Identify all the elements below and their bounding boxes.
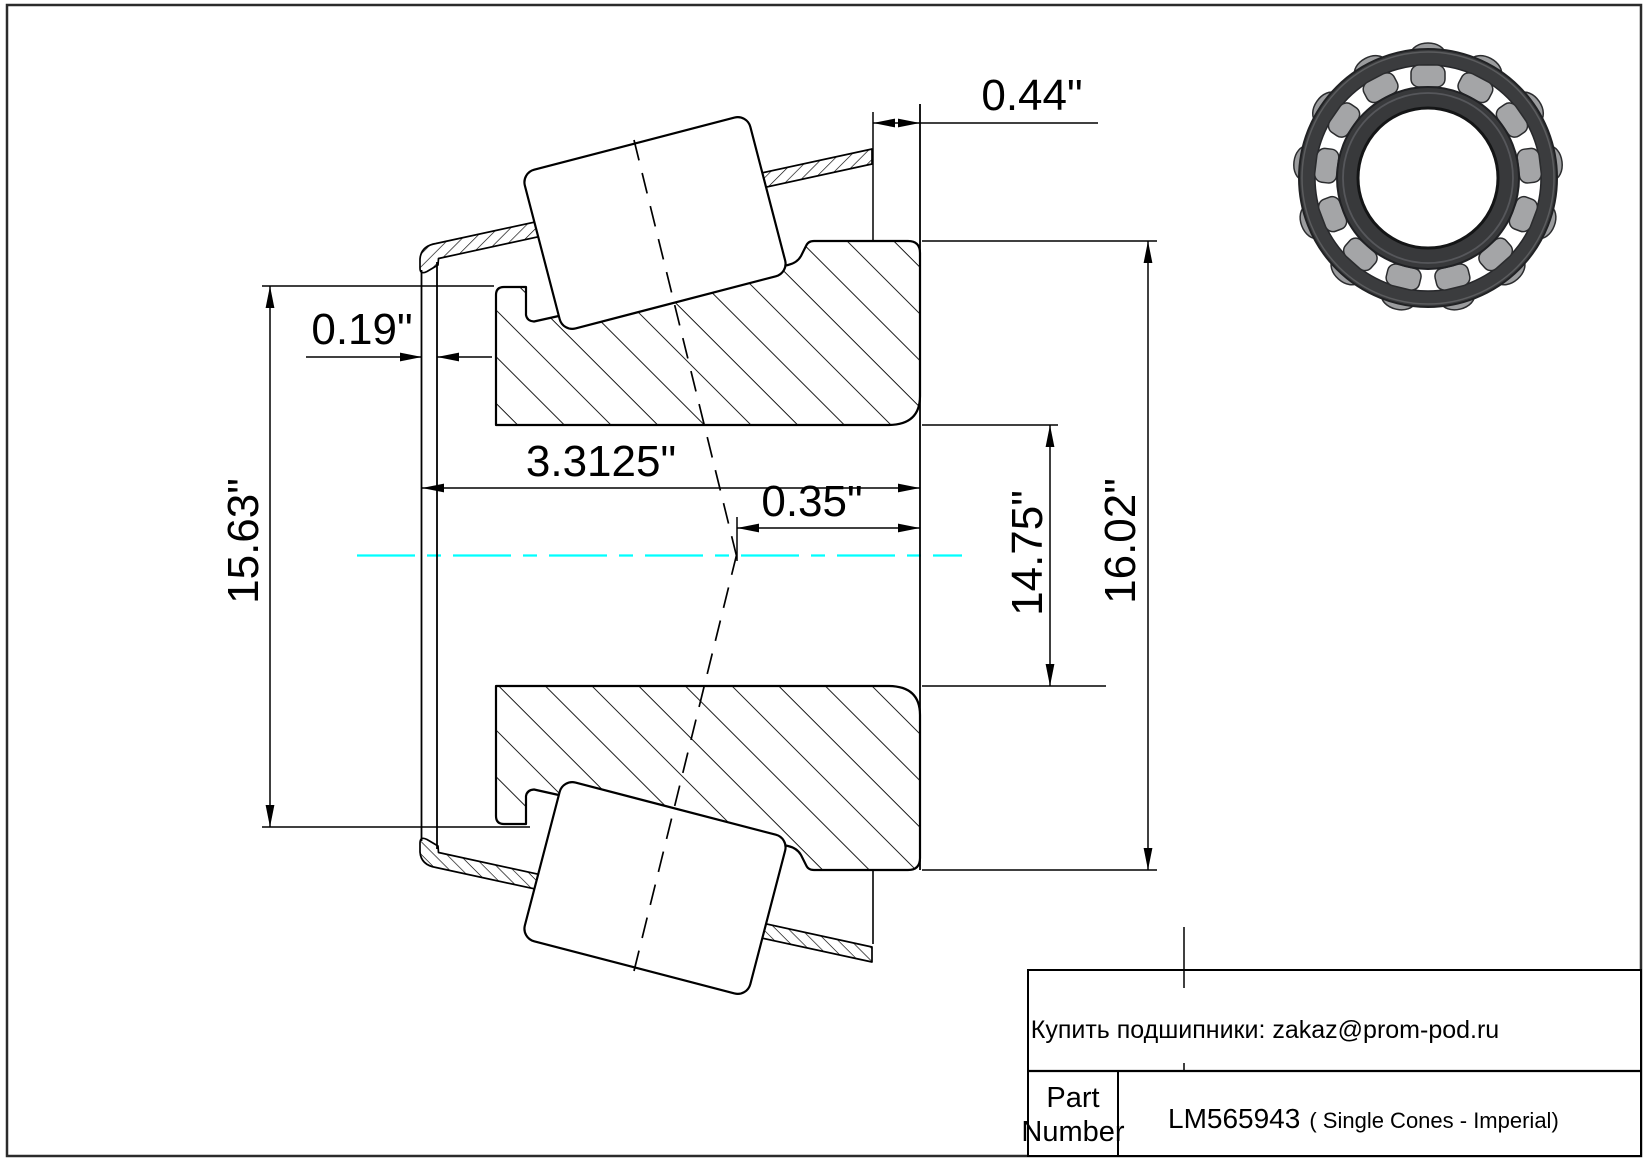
part-number: LM565943 bbox=[1168, 1103, 1300, 1134]
part-label-line1: Part bbox=[1046, 1082, 1099, 1114]
dim-flange-diameter: 15.63" bbox=[219, 478, 268, 604]
dim-outer-diameter: 16.02" bbox=[1096, 478, 1145, 604]
dim-cup-offset: 0.44" bbox=[981, 71, 1082, 120]
part-label-line2: Number bbox=[1021, 1116, 1124, 1148]
part-number-value: LM565943( Single Cones - Imperial) bbox=[1168, 1103, 1559, 1134]
vendor-note: Купить подшипники: zakaz@prom-pod.ru bbox=[1031, 1016, 1499, 1044]
dim-lip-gap: 0.19" bbox=[311, 305, 412, 354]
part-description: ( Single Cones - Imperial) bbox=[1309, 1108, 1558, 1133]
dim-apex-offset: 0.35" bbox=[761, 477, 862, 526]
dim-cone-width: 3.3125" bbox=[526, 437, 676, 486]
drawing-page: 0.44" 0.19" 3.3125" 0.35" 15.63" 14.75" … bbox=[0, 0, 1649, 1167]
dim-bore-diameter: 14.75" bbox=[1003, 490, 1052, 616]
technical-drawing: 0.44" 0.19" 3.3125" 0.35" 15.63" 14.75" … bbox=[0, 0, 1649, 1167]
